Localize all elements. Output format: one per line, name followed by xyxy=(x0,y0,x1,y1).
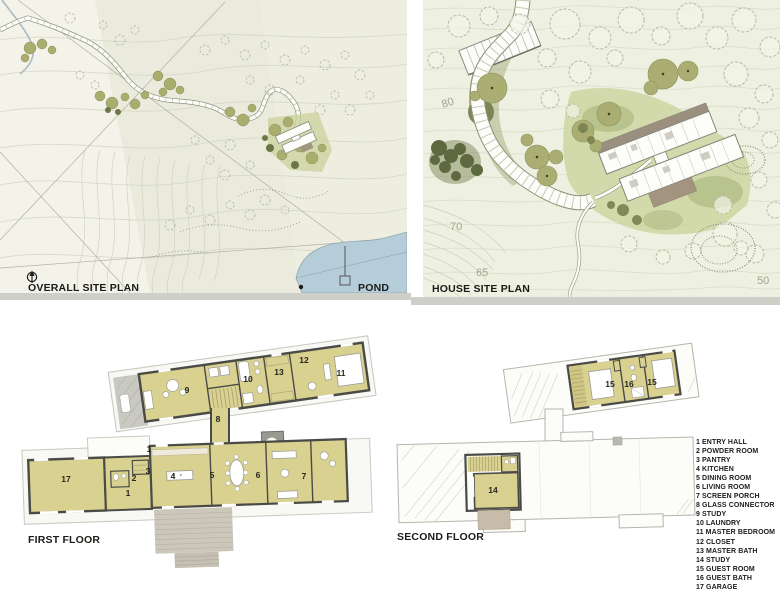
legend-item: 17 GARAGE xyxy=(696,583,780,592)
legend-item: 9 STUDY xyxy=(696,510,780,519)
room-label-1b: 1 xyxy=(126,488,131,498)
legend-item: 10 LAUNDRY xyxy=(696,519,780,528)
house-site-plan-panel: 80 70 65 50 HOUSE SITE PLAN xyxy=(423,0,780,298)
pond-label: POND xyxy=(358,282,389,293)
contour-label-70: 70 xyxy=(450,221,462,233)
room-label-6: 6 xyxy=(256,470,261,480)
connector-roof xyxy=(545,409,563,441)
first-floor-lower-wing xyxy=(22,428,374,573)
legend-item: 15 GUEST ROOM xyxy=(696,565,780,574)
room-label-11: 11 xyxy=(337,368,346,378)
house-site-plan-title: HOUSE SITE PLAN xyxy=(432,283,530,295)
first-floor-title: FIRST FLOOR xyxy=(28,534,100,546)
legend-item: 5 DINING ROOM xyxy=(696,474,780,483)
room-label-15a: 15 xyxy=(605,379,615,389)
panel-shadow xyxy=(0,293,411,300)
legend-item: 1 ENTRY HALL xyxy=(696,438,780,447)
legend-item: 12 CLOSET xyxy=(696,538,780,547)
second-floor-title: SECOND FLOOR xyxy=(397,531,484,543)
legend-item: 3 PANTRY xyxy=(696,456,780,465)
overall-site-plan-panel: OVERALL SITE PLAN POND xyxy=(0,0,407,293)
room-label-10: 10 xyxy=(243,374,253,384)
legend-item: 13 MASTER BATH xyxy=(696,547,780,556)
panel-shadow xyxy=(411,297,780,305)
room-label-15b: 15 xyxy=(647,377,657,387)
legend-item: 8 GLASS CONNECTOR xyxy=(696,501,780,510)
room-label-14: 14 xyxy=(488,485,498,495)
legend-item: 14 STUDY xyxy=(696,556,780,565)
room-label-2: 2 xyxy=(132,473,137,483)
room-label-5: 5 xyxy=(210,470,215,480)
overall-site-plan-title: OVERALL SITE PLAN xyxy=(28,282,139,293)
room-label-3: 3 xyxy=(146,466,151,476)
second-floor-lower-wing xyxy=(397,429,695,535)
legend-item: 11 MASTER BEDROOM xyxy=(696,528,780,537)
contour-label-65: 65 xyxy=(476,267,488,279)
survey-point xyxy=(299,285,303,289)
legend-item: 4 KITCHEN xyxy=(696,465,780,474)
room-label-7: 7 xyxy=(302,471,307,481)
legend-item: 2 POWDER ROOM xyxy=(696,447,780,456)
room-label-17: 17 xyxy=(61,474,71,484)
room-label-8: 8 xyxy=(216,414,221,424)
contour-label-50: 50 xyxy=(757,275,769,287)
legend-item: 7 SCREEN PORCH xyxy=(696,492,780,501)
legend-item: 16 GUEST BATH xyxy=(696,574,780,583)
room-legend: 1 ENTRY HALL 2 POWDER ROOM 3 PANTRY 4 KI… xyxy=(696,438,780,592)
room-label-12: 12 xyxy=(299,355,309,365)
legend-item: 6 LIVING ROOM xyxy=(696,483,780,492)
first-floor-upper-wing xyxy=(108,336,376,432)
room-label-1a: 1 xyxy=(147,444,152,454)
room-label-13: 13 xyxy=(274,367,284,377)
second-floor-upper-wing xyxy=(503,343,699,423)
room-label-9: 9 xyxy=(185,385,190,395)
room-label-16: 16 xyxy=(624,379,634,389)
room-label-4: 4 xyxy=(171,471,176,481)
lawn-patch xyxy=(643,210,683,230)
